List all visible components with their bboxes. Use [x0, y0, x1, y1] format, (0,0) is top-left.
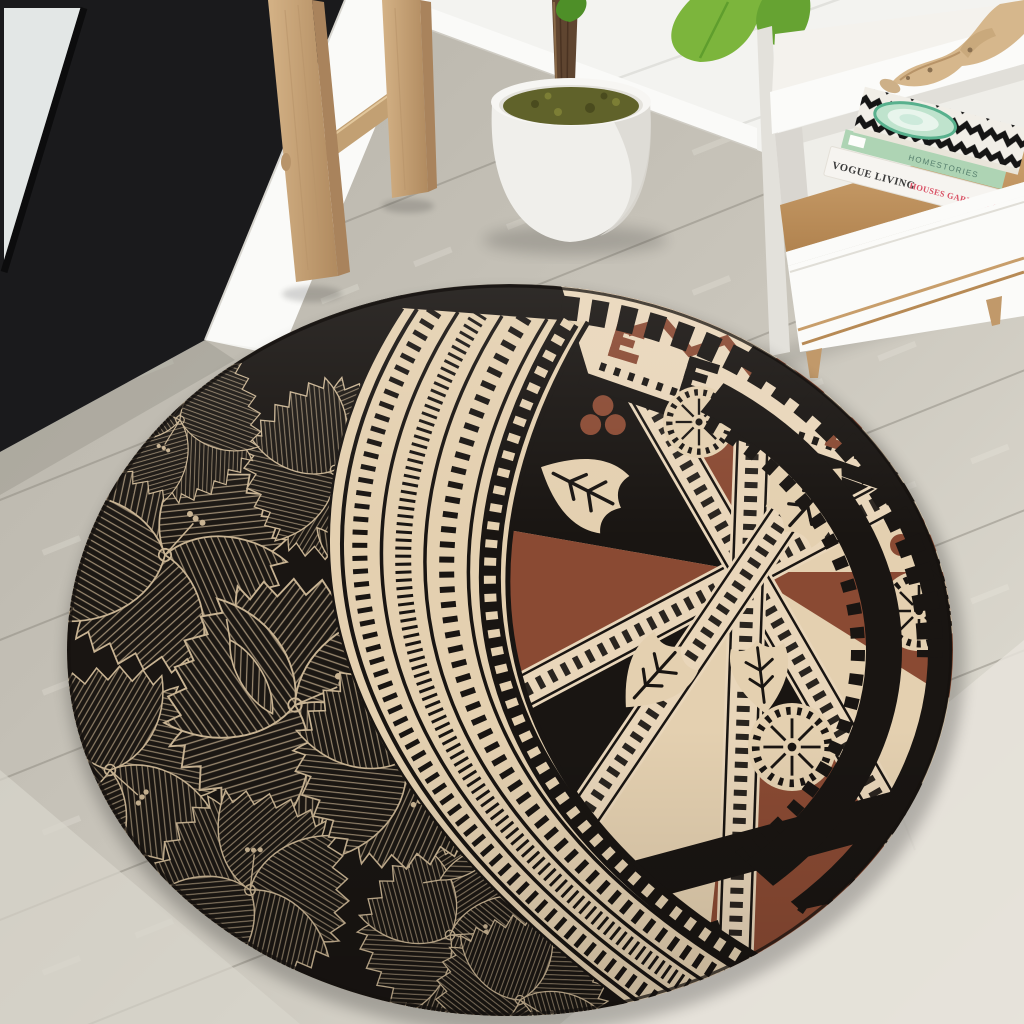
ladder-shadow — [282, 286, 342, 302]
side-cabinet: VOGUE LIVING HOUSES GARDENS PEOPLE HOMES… — [757, 0, 1024, 378]
ladder-peg — [281, 153, 291, 171]
ladder-shadow — [382, 199, 434, 213]
pot-moss — [503, 87, 639, 125]
scene: VOGUE LIVING HOUSES GARDENS PEOPLE HOMES… — [0, 0, 1024, 1024]
scene-canvas: VOGUE LIVING HOUSES GARDENS PEOPLE HOMES… — [0, 0, 1024, 1024]
